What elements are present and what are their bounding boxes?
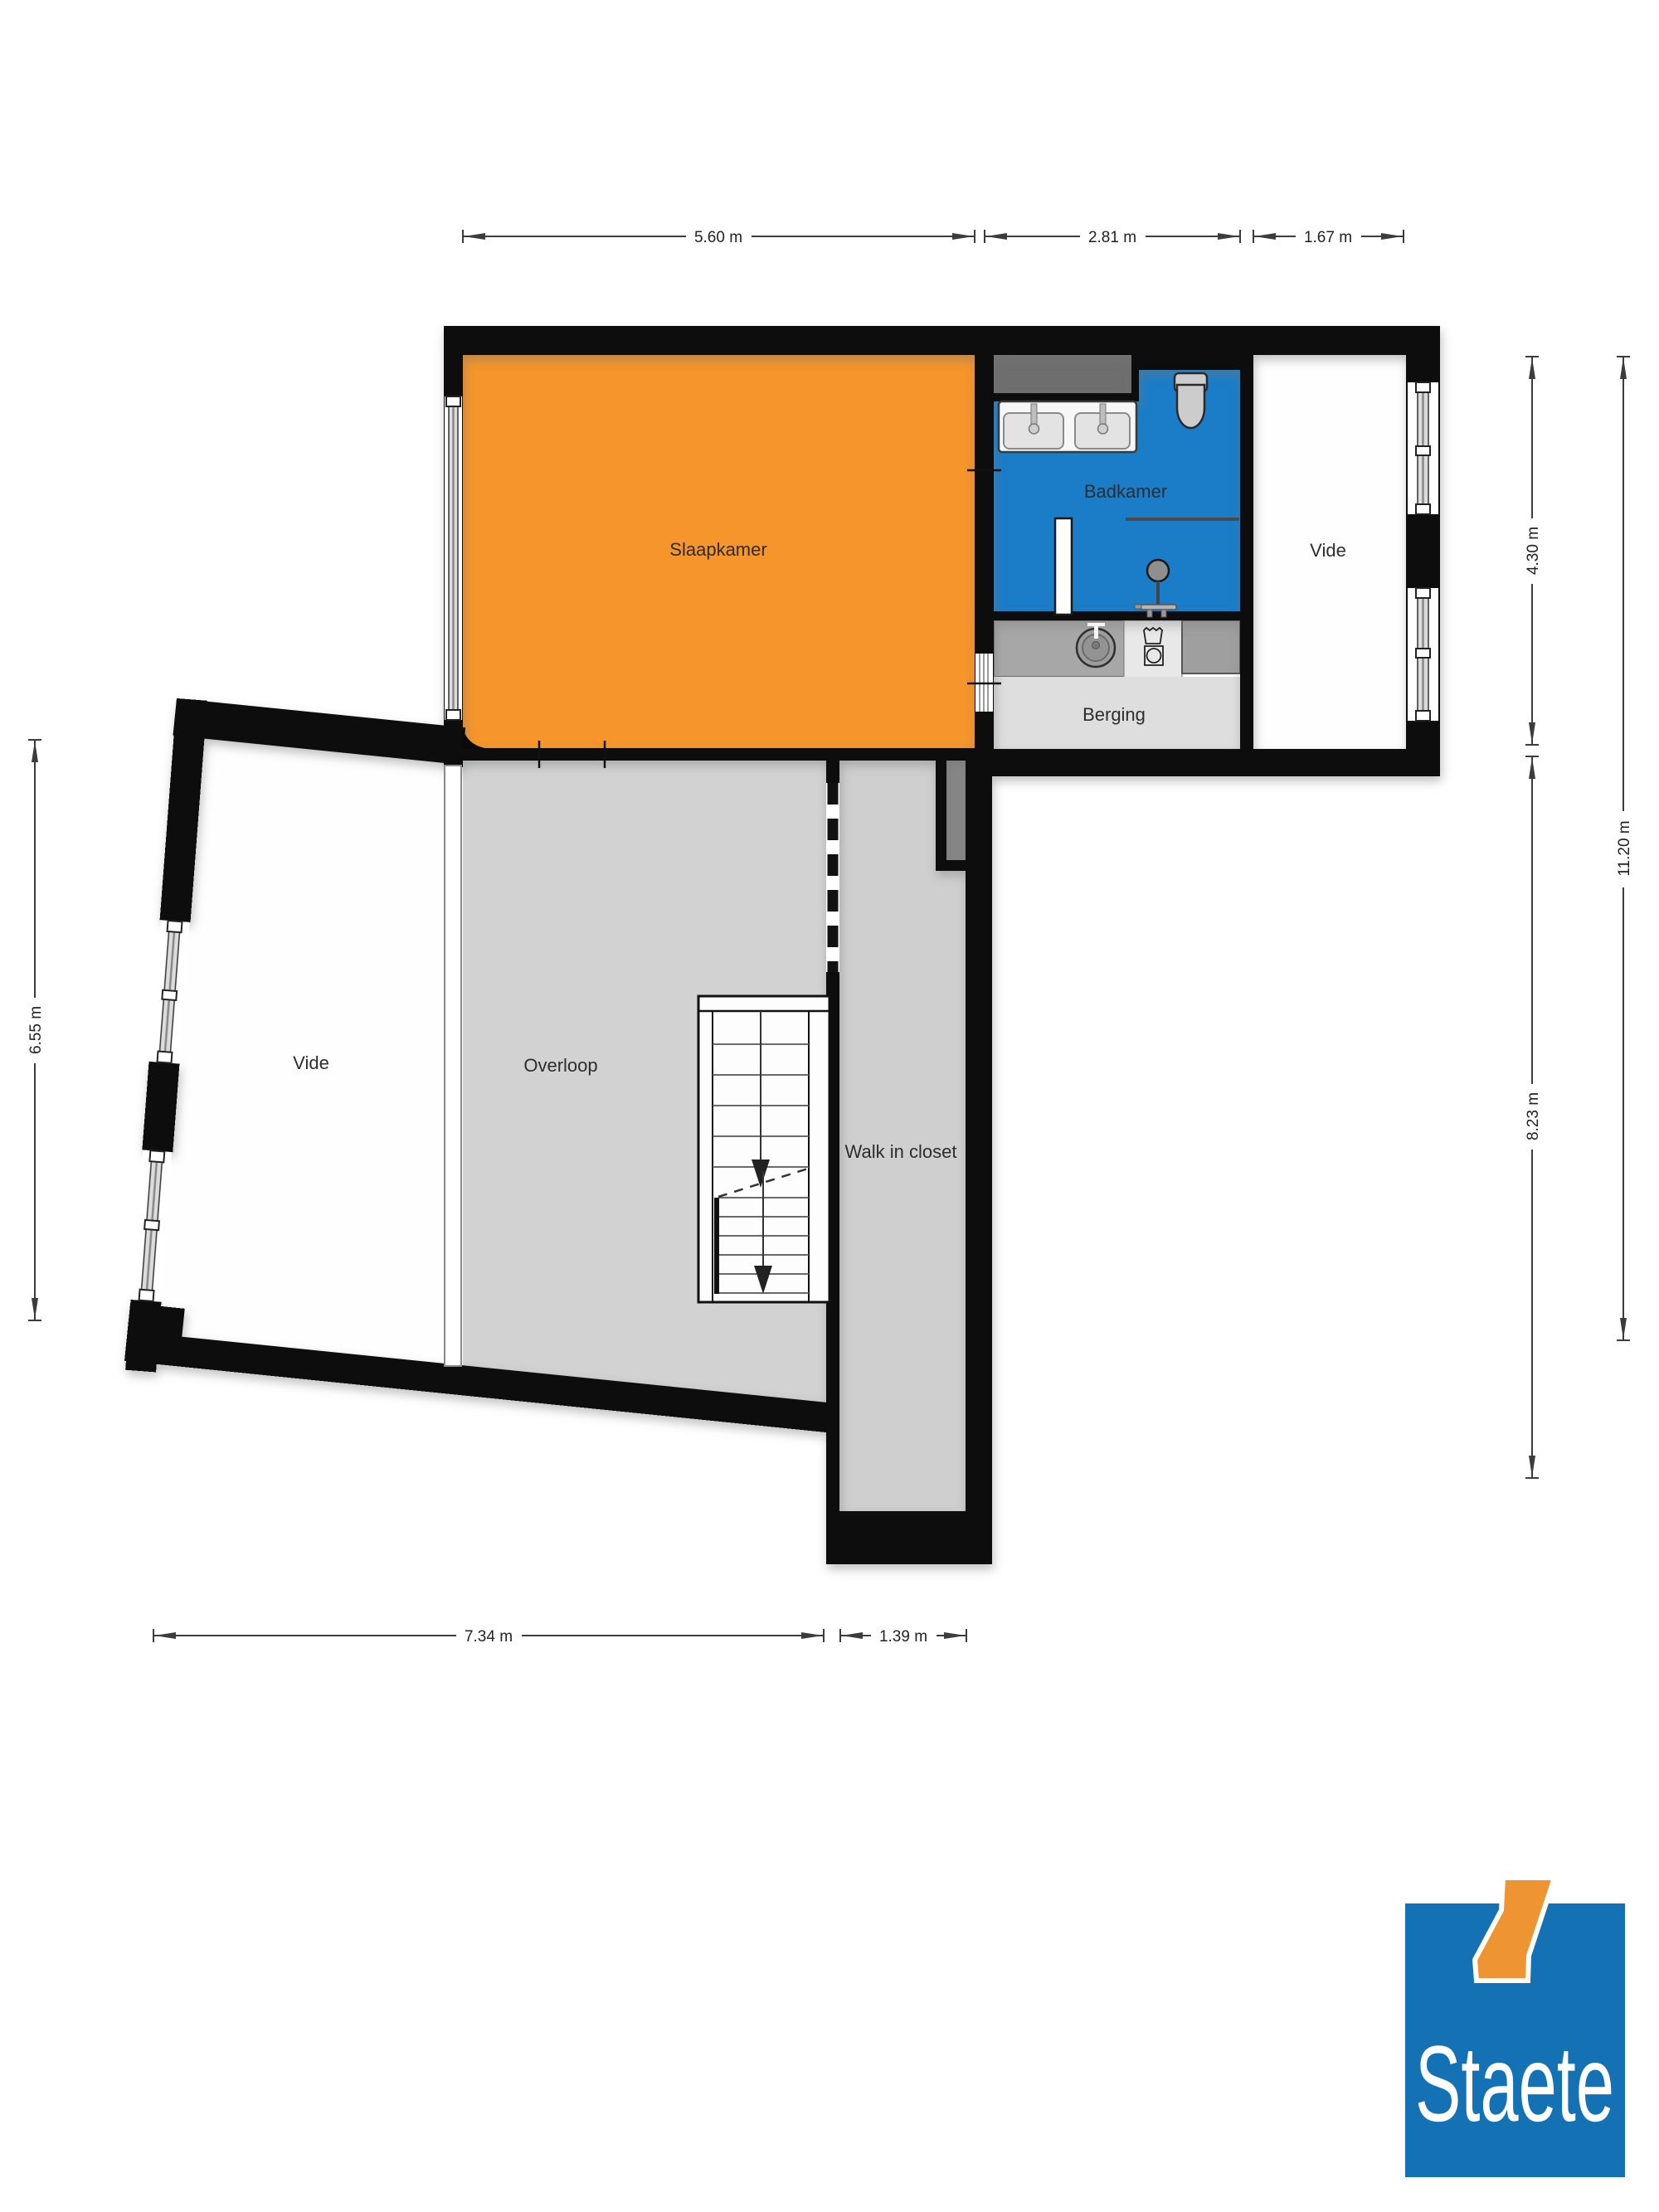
svg-text:Slaapkamer: Slaapkamer — [669, 539, 766, 560]
svg-text:5.60 m: 5.60 m — [694, 229, 742, 246]
svg-text:11.20 m: 11.20 m — [1616, 820, 1633, 876]
svg-text:7.34 m: 7.34 m — [465, 1628, 513, 1646]
svg-text:1.67 m: 1.67 m — [1304, 229, 1352, 246]
svg-text:Walk in closet: Walk in closet — [845, 1141, 957, 1162]
svg-text:Overloop: Overloop — [523, 1055, 597, 1076]
svg-text:Berging: Berging — [1082, 704, 1146, 725]
svg-text:8.23 m: 8.23 m — [1525, 1092, 1542, 1140]
svg-text:4.30 m: 4.30 m — [1525, 527, 1542, 575]
svg-text:2.81 m: 2.81 m — [1088, 229, 1136, 246]
svg-text:Vide: Vide — [293, 1053, 329, 1073]
svg-text:Staete: Staete — [1415, 2023, 1614, 2144]
svg-text:Badkamer: Badkamer — [1084, 481, 1167, 502]
svg-text:6.55 m: 6.55 m — [27, 1006, 45, 1054]
svg-text:1.39 m: 1.39 m — [879, 1628, 927, 1646]
svg-text:Vide: Vide — [1310, 540, 1346, 561]
